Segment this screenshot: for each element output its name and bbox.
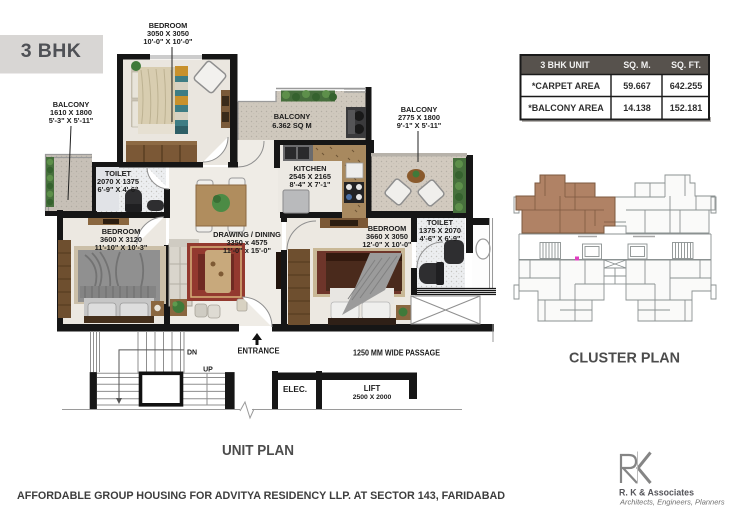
- svg-text:ELEC.: ELEC.: [283, 385, 307, 394]
- svg-text:9'-1" X 5'-11": 9'-1" X 5'-11": [397, 121, 442, 130]
- svg-text:12'-0" X 10'-0": 12'-0" X 10'-0": [362, 240, 412, 249]
- svg-text:AFFORDABLE GROUP HOUSING FOR A: AFFORDABLE GROUP HOUSING FOR ADVITYA RES…: [17, 490, 505, 502]
- svg-text:ENTRANCE: ENTRANCE: [238, 346, 280, 356]
- svg-text:DN: DN: [187, 350, 197, 357]
- svg-text:11'-10" X 10'-3": 11'-10" X 10'-3": [95, 243, 148, 252]
- svg-text:SQ. M.: SQ. M.: [623, 60, 650, 70]
- svg-text:LIFT: LIFT: [364, 384, 381, 393]
- svg-text:152.181: 152.181: [670, 103, 703, 113]
- svg-text:CLUSTER PLAN: CLUSTER PLAN: [569, 350, 680, 367]
- svg-text:59.667: 59.667: [623, 81, 651, 91]
- svg-text:3 BHK: 3 BHK: [21, 40, 82, 62]
- svg-text:11'-0" x 15'-0": 11'-0" x 15'-0": [223, 246, 271, 255]
- svg-text:642.255: 642.255: [670, 81, 703, 91]
- svg-text:14.138: 14.138: [623, 103, 651, 113]
- svg-text:*CARPET AREA: *CARPET AREA: [532, 81, 601, 91]
- svg-text:SQ. FT.: SQ. FT.: [671, 60, 701, 70]
- svg-text:6'-9" X 4'-6": 6'-9" X 4'-6": [98, 185, 139, 194]
- svg-text:1250 MM WIDE PASSAGE: 1250 MM WIDE PASSAGE: [353, 348, 440, 358]
- svg-text:UNIT PLAN: UNIT PLAN: [222, 442, 294, 459]
- svg-text:3 BHK UNIT: 3 BHK UNIT: [540, 60, 590, 70]
- svg-text:R. K & Associates: R. K & Associates: [619, 488, 694, 498]
- svg-text:6.362 SQ M: 6.362 SQ M: [272, 121, 311, 130]
- svg-text:2500 X 2000: 2500 X 2000: [353, 394, 392, 401]
- svg-text:Architects, Engineers, Planner: Architects, Engineers, Planners: [619, 498, 725, 507]
- svg-text:*BALCONY AREA: *BALCONY AREA: [528, 103, 604, 113]
- svg-text:4'-6" X 6'-9": 4'-6" X 6'-9": [420, 234, 461, 243]
- svg-text:8'-4" X 7'-1": 8'-4" X 7'-1": [290, 180, 331, 189]
- svg-text:BALCONY: BALCONY: [274, 112, 311, 121]
- svg-text:10'-0" X 10'-0": 10'-0" X 10'-0": [143, 37, 193, 46]
- svg-text:UP: UP: [203, 367, 213, 374]
- svg-text:5'-3" X 5'-11": 5'-3" X 5'-11": [49, 116, 94, 125]
